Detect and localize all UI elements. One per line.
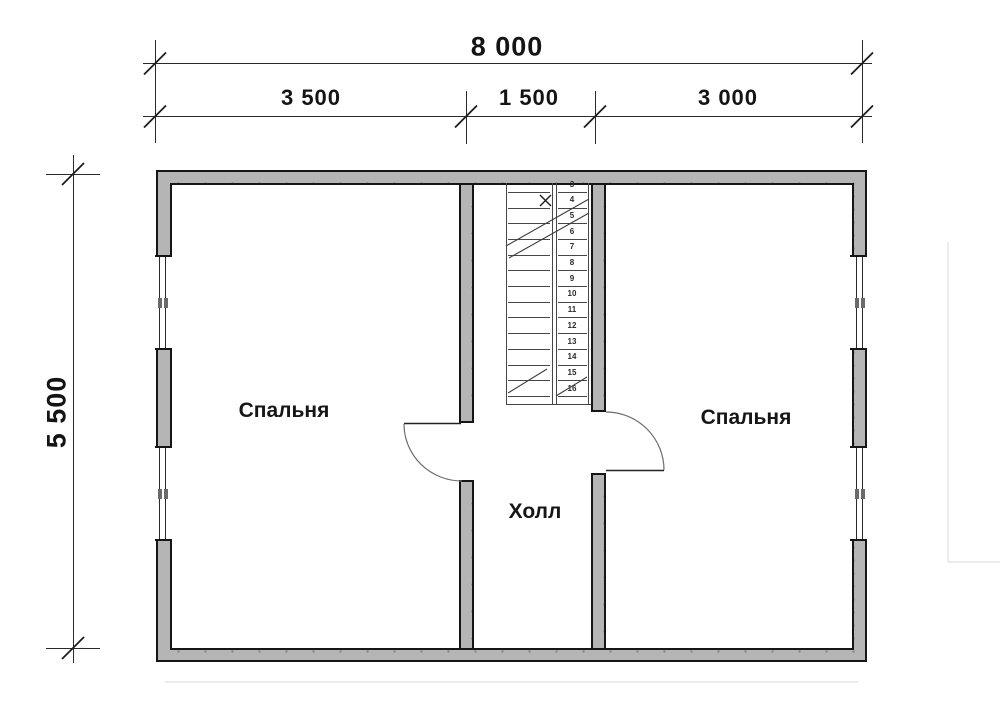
room-label-bedroom-left: Спальня xyxy=(239,399,330,423)
stair-tread-line xyxy=(508,349,550,350)
stair-tread-line xyxy=(558,333,587,334)
stair-tread-line xyxy=(558,255,587,256)
stair-tread-line xyxy=(558,396,587,397)
stair-tread-line xyxy=(508,255,550,256)
window-mullion xyxy=(861,298,865,308)
stairs-edge-line xyxy=(588,183,589,404)
stair-tread-line xyxy=(558,365,587,366)
stair-tread-line xyxy=(508,270,550,271)
stairs-divider-line xyxy=(556,183,557,404)
stair-step-number: 5 xyxy=(563,211,581,220)
stair-step-number: 8 xyxy=(563,258,581,267)
stair-tread-line xyxy=(508,380,550,381)
stair-step-number: 4 xyxy=(563,195,581,204)
window-left-top xyxy=(155,255,172,350)
stairs: 345678910111213141516 xyxy=(506,183,591,405)
stair-tread-line xyxy=(508,317,550,318)
stair-step-number: 12 xyxy=(563,321,581,330)
window-right-bottom xyxy=(850,446,867,541)
stair-tread-line xyxy=(508,302,550,303)
stair-tread-line xyxy=(558,239,587,240)
stair-step-number: 3 xyxy=(563,180,581,189)
dim-segment-left-label: 3 500 xyxy=(281,85,341,111)
interior-wall-right-lower xyxy=(591,473,606,650)
room-label-hall: Холл xyxy=(509,500,562,524)
stair-tread-line xyxy=(558,286,587,287)
stair-tread-line xyxy=(508,239,550,240)
stair-tread-line xyxy=(558,192,587,193)
window-left-bottom xyxy=(155,446,172,541)
interior-wall-right-upper xyxy=(591,183,606,412)
stair-tread-line xyxy=(508,286,550,287)
interior-wall-left-upper xyxy=(459,183,474,423)
stair-tread-line xyxy=(558,349,587,350)
stair-step-number: 13 xyxy=(563,337,581,346)
dim-height-label: 5 500 xyxy=(42,376,73,449)
stair-step-number: 6 xyxy=(563,227,581,236)
window-mullion xyxy=(158,298,162,308)
window-mullion xyxy=(855,489,859,499)
floor-plan: 8 000 3 500 1 500 3 000 5 500 xyxy=(0,0,1000,707)
interior-wall-left-lower xyxy=(459,480,474,650)
window-mullion xyxy=(855,298,859,308)
stair-tread-line xyxy=(558,302,587,303)
stair-step-number: 11 xyxy=(563,305,581,314)
stair-tread-line xyxy=(508,192,550,193)
window-right-top xyxy=(850,255,867,350)
stairs-edge-line xyxy=(506,183,507,404)
dim-segment-right-label: 3 000 xyxy=(698,85,758,111)
room-label-bedroom-right: Спальня xyxy=(701,406,792,430)
stair-tread-line xyxy=(508,208,550,209)
stair-tread-line xyxy=(508,396,550,397)
stair-tread-line xyxy=(558,317,587,318)
window-mullion xyxy=(158,489,162,499)
window-mullion xyxy=(164,298,168,308)
window-mullion xyxy=(164,489,168,499)
stair-tread-line xyxy=(508,223,550,224)
stair-step-number: 15 xyxy=(563,368,581,377)
stair-step-number: 9 xyxy=(563,274,581,283)
stair-step-number: 7 xyxy=(563,242,581,251)
stair-tread-line xyxy=(558,380,587,381)
stair-tread-line xyxy=(558,270,587,271)
dim-segment-middle-label: 1 500 xyxy=(499,85,559,111)
dim-total-width-label: 8 000 xyxy=(471,32,544,63)
stair-step-number: 16 xyxy=(563,384,581,393)
stair-step-number: 10 xyxy=(563,289,581,298)
stair-step-number: 14 xyxy=(563,352,581,361)
stair-tread-line xyxy=(508,333,550,334)
stairs-divider-line xyxy=(552,183,553,404)
stair-tread-line xyxy=(558,208,587,209)
window-mullion xyxy=(861,489,865,499)
stair-tread-line xyxy=(508,365,550,366)
stair-tread-line xyxy=(558,223,587,224)
